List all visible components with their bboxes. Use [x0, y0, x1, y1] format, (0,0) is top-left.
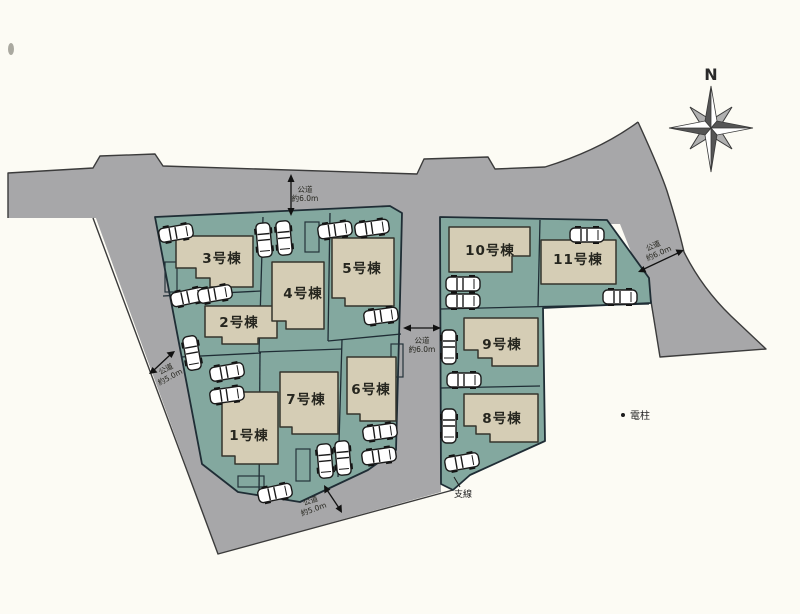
site-plan-map: 1号棟 2号棟 3号棟 4号棟 5号棟 6号棟 7号棟 8号棟 9号棟 10号棟… — [0, 0, 800, 614]
car-icon — [315, 443, 336, 478]
lot-label-3: 3号棟 — [202, 250, 241, 267]
road-label-top-1: 公道 — [298, 184, 313, 194]
lot-label-7: 7号棟 — [286, 391, 325, 408]
compass-north-label: N — [704, 65, 717, 84]
lot-label-2: 2号棟 — [219, 314, 258, 331]
lot-label-11: 11号棟 — [553, 251, 603, 268]
lot-label-6: 6号棟 — [351, 381, 390, 398]
car-icon — [440, 330, 458, 364]
road-label-center-1: 公道 — [415, 335, 430, 345]
car-icon — [254, 222, 275, 257]
car-icon — [447, 371, 481, 389]
car-icon — [570, 226, 604, 244]
utility-pole-label: 電柱 — [630, 409, 650, 422]
utility-pole-dot — [621, 413, 625, 417]
car-icon — [446, 275, 480, 293]
car-icon — [446, 292, 480, 310]
road-label-top-2: 約6.0m — [292, 193, 319, 203]
scan-mark — [8, 43, 14, 55]
lot-label-4: 4号棟 — [283, 285, 322, 302]
car-icon — [274, 220, 295, 255]
compass-rose-icon: N — [669, 65, 753, 172]
car-icon — [440, 409, 458, 443]
utility-pole-legend: 電柱 — [621, 409, 650, 422]
road-label-center-2: 約6.0m — [409, 344, 436, 354]
lot-label-5: 5号棟 — [342, 260, 381, 277]
car-icon — [603, 288, 637, 306]
lot-label-8: 8号棟 — [482, 410, 521, 427]
lot-label-1: 1号棟 — [229, 427, 268, 444]
lot-label-9: 9号棟 — [482, 336, 521, 353]
lot-label-10: 10号棟 — [465, 242, 515, 259]
support-line-label: 支線 — [454, 488, 472, 500]
car-icon — [333, 440, 354, 475]
